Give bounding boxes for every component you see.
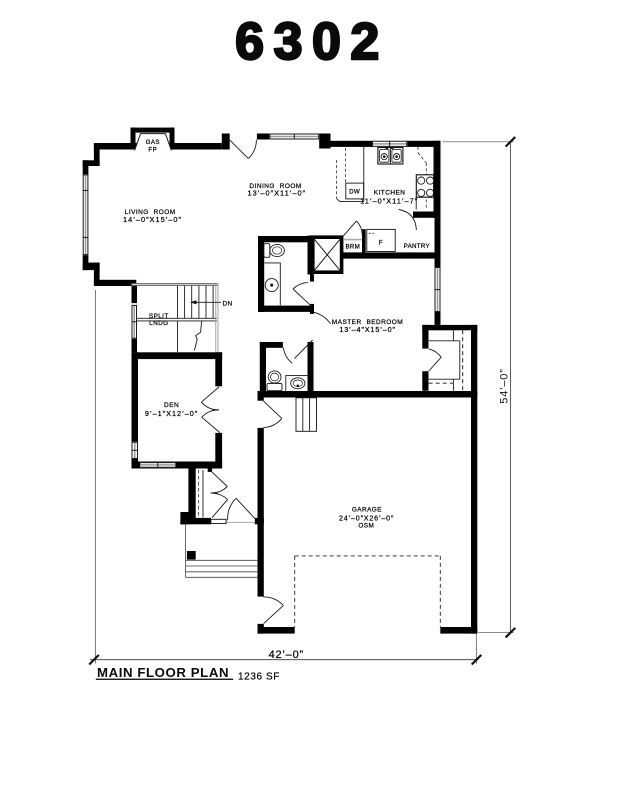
svg-text:1236 SF: 1236 SF [238, 672, 280, 683]
svg-text:54’–0”: 54’–0” [498, 368, 510, 403]
svg-text:PANTRY: PANTRY [404, 243, 430, 250]
svg-text:KITCHEN: KITCHEN [374, 189, 406, 196]
svg-text:24’–0”X26’–0”: 24’–0”X26’–0” [339, 515, 394, 523]
svg-text:F: F [379, 239, 383, 246]
svg-text:FP: FP [148, 147, 157, 154]
svg-text:MAIN FLOOR PLAN: MAIN FLOOR PLAN [97, 665, 229, 680]
svg-text:GARAGE: GARAGE [352, 507, 382, 514]
svg-text:13’–0”X11’–0”: 13’–0”X11’–0” [248, 189, 306, 198]
svg-text:LNDG: LNDG [149, 320, 168, 327]
svg-text:11’–0”X11’–7”: 11’–0”X11’–7” [360, 196, 418, 205]
svg-text:OSM: OSM [358, 523, 374, 530]
svg-text:DEN: DEN [164, 402, 179, 409]
svg-text:13’–4”X15’–0”: 13’–4”X15’–0” [339, 325, 395, 334]
svg-text:6302: 6302 [235, 13, 389, 71]
svg-text:14’–0”X15’–0”: 14’–0”X15’–0” [123, 215, 182, 224]
svg-text:42’–0”: 42’–0” [269, 649, 304, 661]
svg-text:DN: DN [223, 300, 233, 307]
svg-text:BRM: BRM [345, 244, 360, 251]
svg-text:GAS: GAS [146, 139, 160, 146]
svg-text:9’–1”X12’–0”: 9’–1”X12’–0” [145, 409, 198, 418]
svg-text:DW: DW [349, 189, 360, 196]
